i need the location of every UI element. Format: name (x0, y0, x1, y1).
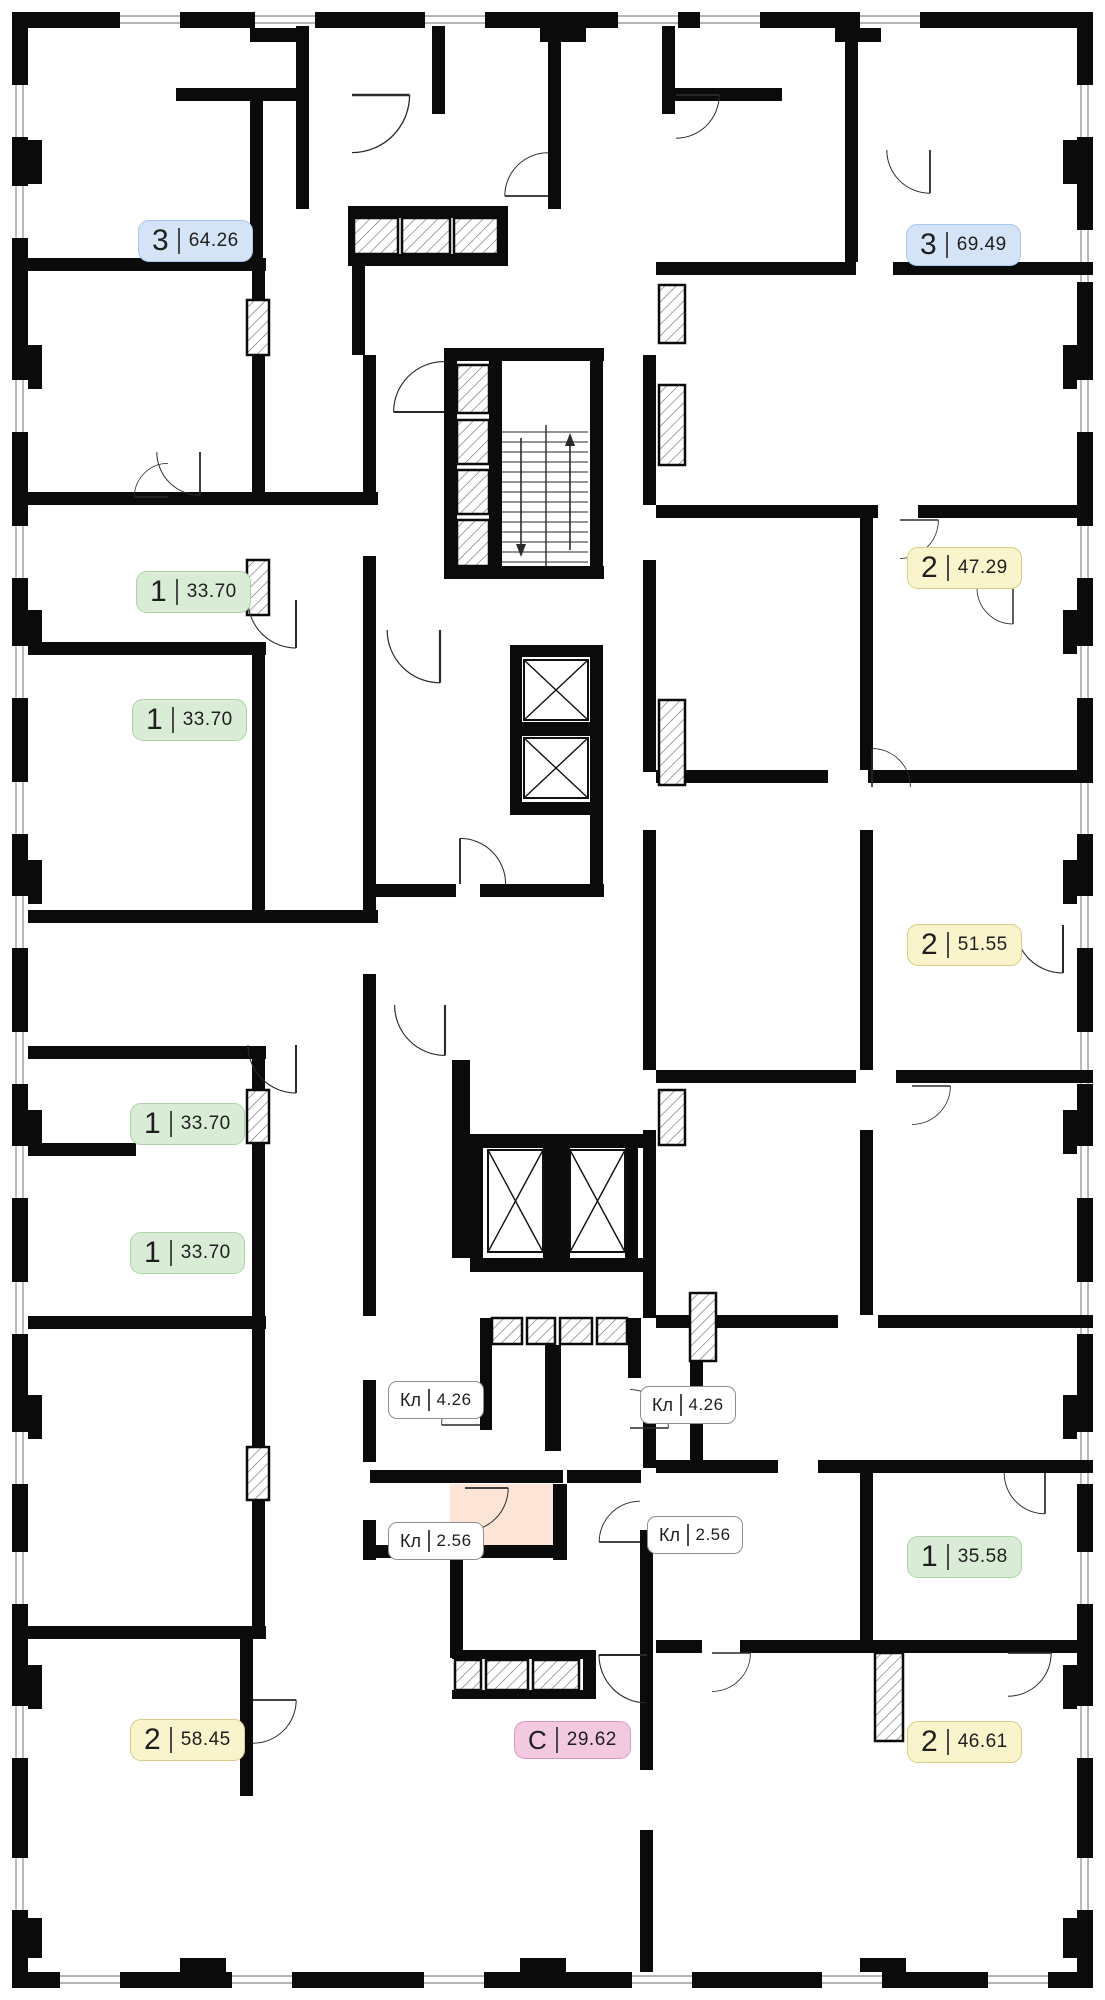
unit-badge-1-33-70-b[interactable]: 133.70 (132, 699, 247, 741)
staircase (502, 425, 588, 566)
unit-area: 33.70 (183, 709, 233, 731)
unit-area: 35.58 (958, 1546, 1008, 1568)
unit-badge-1-35-58[interactable]: 135.58 (907, 1536, 1022, 1578)
unit-type: 3 (920, 230, 937, 260)
closet-area: 4.26 (689, 1395, 724, 1415)
unit-type: 1 (146, 705, 163, 735)
floor-plan: 364.26 369.49 133.70 133.70 133.70 133.7… (0, 0, 1105, 2000)
elevator-small-2 (524, 738, 588, 798)
unit-type: 1 (921, 1542, 938, 1572)
closet-badge-2-56-right: Кл2.56 (647, 1516, 743, 1554)
badge-divider (947, 1544, 949, 1570)
unit-type: 2 (921, 553, 938, 583)
badge-divider (176, 579, 178, 605)
floor-plan-drawing (0, 0, 1105, 2000)
elevator-large-2 (570, 1150, 625, 1252)
badge-divider (556, 1727, 558, 1753)
unit-area: 47.29 (958, 557, 1008, 579)
unit-area: 33.70 (181, 1242, 231, 1264)
closet-type: Кл (659, 1526, 680, 1544)
closet-area: 2.56 (437, 1531, 472, 1551)
closet-type: Кл (400, 1532, 421, 1550)
badge-divider (172, 707, 174, 733)
unit-area: 51.55 (958, 934, 1008, 956)
unit-badge-2-51-55[interactable]: 251.55 (907, 924, 1022, 966)
badge-divider (687, 1524, 689, 1546)
unit-badge-3-64-26[interactable]: 364.26 (138, 220, 253, 262)
unit-type: 1 (144, 1238, 161, 1268)
badge-divider (947, 932, 949, 958)
unit-type: 1 (150, 577, 167, 607)
badge-divider (170, 1111, 172, 1137)
shaft-hatching (247, 218, 903, 1741)
unit-type: 1 (144, 1109, 161, 1139)
elevator-small-1 (524, 660, 588, 720)
unit-area: 46.61 (958, 1731, 1008, 1753)
badge-divider (428, 1389, 430, 1411)
closet-badge-4-26-left: Кл4.26 (388, 1381, 484, 1419)
unit-area: 29.62 (567, 1729, 617, 1751)
badge-divider (428, 1530, 430, 1552)
badge-divider (170, 1240, 172, 1266)
unit-badge-2-58-45[interactable]: 258.45 (130, 1719, 245, 1761)
unit-type: 2 (921, 1727, 938, 1757)
closet-badge-4-26-right: Кл4.26 (640, 1386, 736, 1424)
closet-type: Кл (400, 1391, 421, 1409)
unit-type: С (528, 1727, 547, 1753)
closet-badge-2-56-left: Кл2.56 (388, 1522, 484, 1560)
badge-divider (680, 1394, 682, 1416)
unit-area: 33.70 (181, 1113, 231, 1135)
unit-area: 69.49 (957, 234, 1007, 256)
unit-area: 33.70 (187, 581, 237, 603)
badge-divider (947, 555, 949, 581)
unit-badge-s-29-62[interactable]: С29.62 (514, 1721, 631, 1759)
unit-badge-2-47-29[interactable]: 247.29 (907, 547, 1022, 589)
unit-badge-2-46-61[interactable]: 246.61 (907, 1721, 1022, 1763)
unit-type: 2 (921, 930, 938, 960)
closet-type: Кл (652, 1396, 673, 1414)
badge-divider (946, 232, 948, 258)
badge-divider (178, 228, 180, 254)
closet-area: 4.26 (437, 1390, 472, 1410)
badge-divider (947, 1729, 949, 1755)
unit-type: 3 (152, 226, 169, 256)
elevator-large-1 (488, 1150, 543, 1252)
unit-type: 2 (144, 1725, 161, 1755)
unit-badge-3-69-49[interactable]: 369.49 (906, 224, 1021, 266)
unit-area: 64.26 (189, 230, 239, 252)
badge-divider (170, 1727, 172, 1753)
unit-badge-1-33-70-c[interactable]: 133.70 (130, 1103, 245, 1145)
unit-badge-1-33-70-d[interactable]: 133.70 (130, 1232, 245, 1274)
unit-area: 58.45 (181, 1729, 231, 1751)
unit-badge-1-33-70-a[interactable]: 133.70 (136, 571, 251, 613)
closet-area: 2.56 (696, 1525, 731, 1545)
